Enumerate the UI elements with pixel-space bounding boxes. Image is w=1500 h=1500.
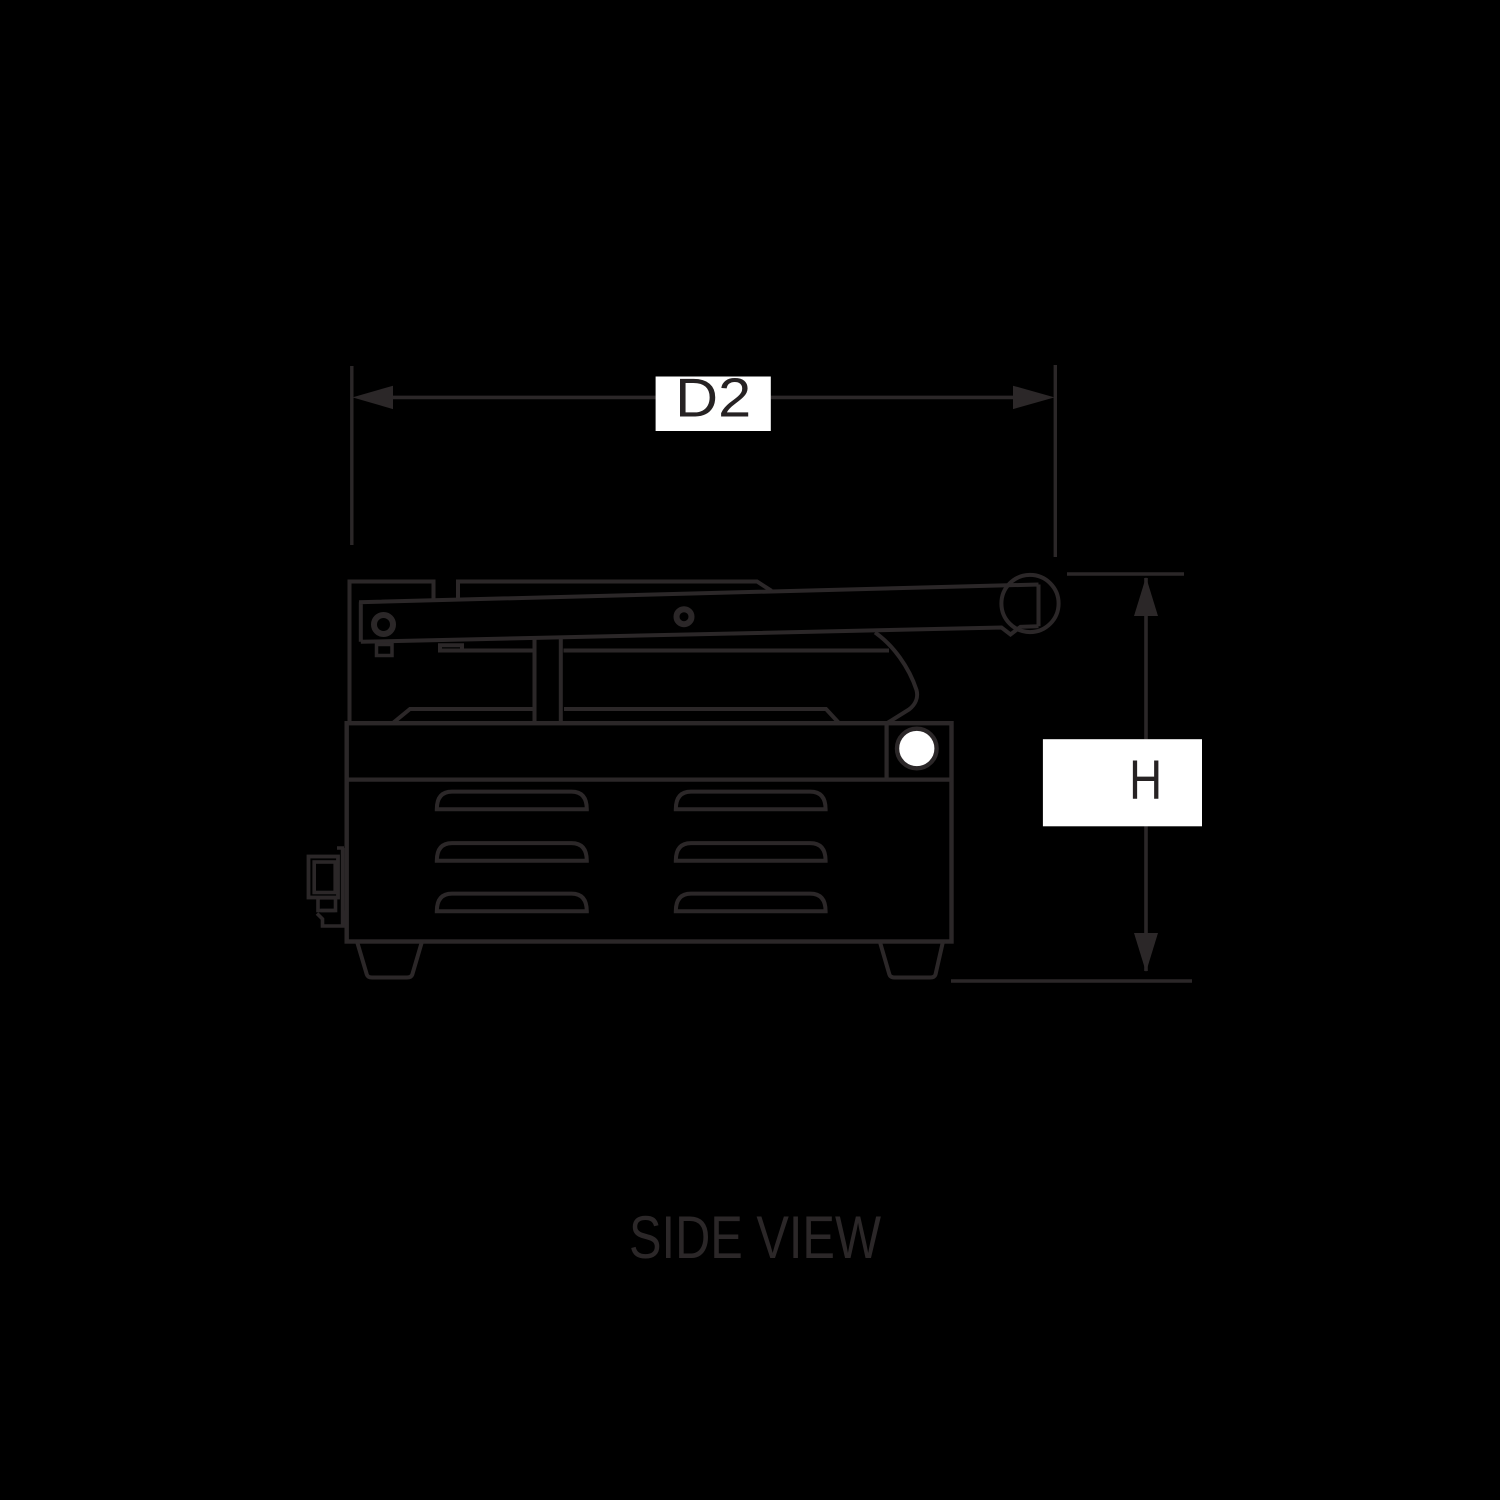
- svg-text:D2: D2: [675, 367, 751, 429]
- svg-text:H: H: [1129, 749, 1162, 811]
- svg-text:SIDE VIEW: SIDE VIEW: [629, 1204, 881, 1271]
